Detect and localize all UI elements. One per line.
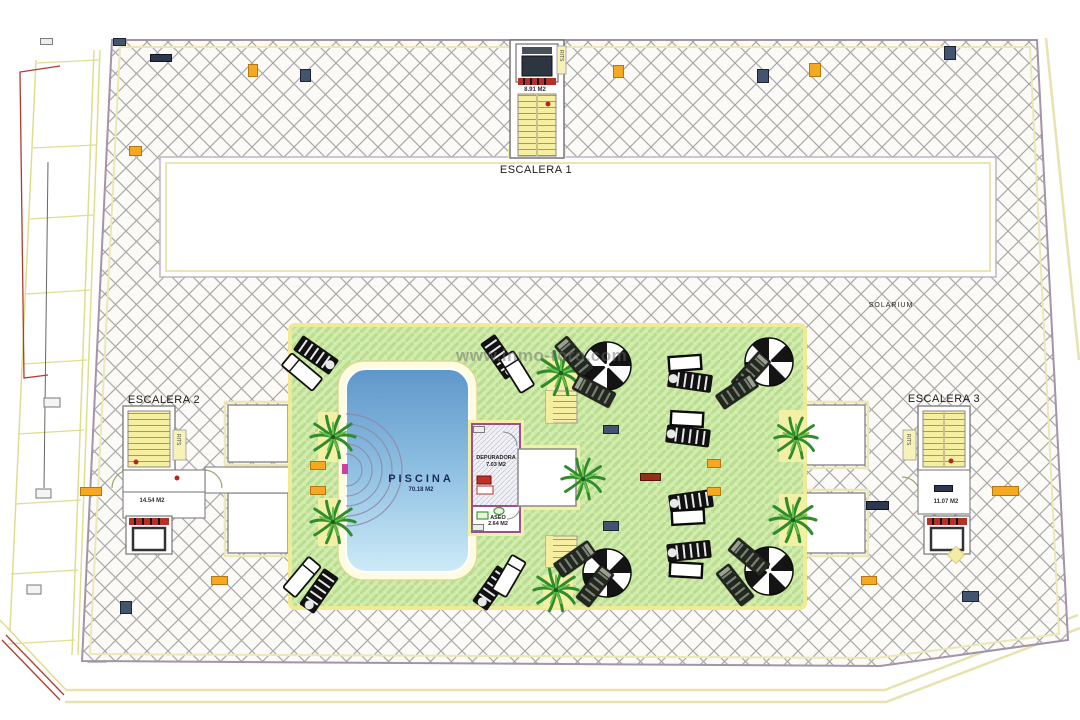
annotation-tag (944, 46, 956, 60)
annotation-tag (129, 146, 142, 156)
annotation-tag (120, 601, 132, 614)
annotation-tag (757, 69, 769, 83)
deck-table (670, 562, 703, 578)
label-escalera-3: ESCALERA 3 (888, 393, 1000, 405)
annotation-tag (603, 521, 619, 531)
annotation-tag (809, 63, 821, 77)
annotation-tag (150, 54, 172, 62)
annotation-tag (934, 485, 953, 492)
floor-plan-page: ESCALERA 1 ESCALERA 2 ESCALERA 3 SOLARIU… (0, 0, 1080, 720)
annotation-tag (113, 38, 126, 46)
label-esc3-area: 11.07 M2 (922, 499, 970, 505)
label-escalera-1: ESCALERA 1 (480, 164, 592, 176)
annotation-tag (310, 486, 326, 495)
annotation-tag (866, 501, 889, 510)
pool-marker (342, 464, 348, 474)
annotation-tag (211, 576, 228, 585)
annotation-tag (861, 576, 877, 585)
watermark-text: www.inmo-toro.com (456, 346, 646, 366)
annotation-tag (992, 486, 1019, 496)
label-piscina-area: 70.18 M2 (376, 487, 466, 493)
annotation-tag (248, 64, 258, 77)
label-escalera-2: ESCALERA 2 (108, 394, 220, 406)
label-esc1-area: 8.91 M2 (510, 87, 560, 93)
deck-table (672, 509, 705, 525)
label-depuradora: DEPURADORA (470, 455, 522, 461)
annotation-tag (613, 65, 624, 78)
annotation-tag (473, 426, 485, 433)
label-aseo-area: 2.64 M2 (478, 521, 518, 527)
stair-arrow-marker (546, 102, 551, 107)
annotation-tag (40, 38, 53, 45)
deck-table (669, 355, 702, 371)
label-esc2-area: 14.54 M2 (128, 498, 176, 504)
annotation-tag (640, 473, 661, 481)
annotation-tag (707, 487, 721, 496)
annotation-tag (80, 487, 102, 496)
stairs-2 (128, 411, 170, 467)
label-rits-2: RITS (175, 434, 180, 458)
pump-unit (477, 476, 491, 484)
annotation-tag (300, 69, 311, 82)
label-rits-1: RITS (558, 50, 563, 74)
label-rits-3: RITS (905, 434, 910, 458)
label-piscina: PISCINA (376, 473, 466, 485)
annotation-tag (603, 425, 619, 434)
label-solarium: SOLARIUM (856, 302, 926, 309)
label-depuradora-area: 7.03 M2 (470, 462, 522, 468)
toilet-icon (494, 508, 504, 515)
swimming-pool (338, 361, 477, 580)
annotation-tag (707, 459, 721, 468)
deck-table (671, 411, 704, 427)
annotation-tag (962, 591, 979, 602)
annotation-tag (310, 461, 326, 470)
